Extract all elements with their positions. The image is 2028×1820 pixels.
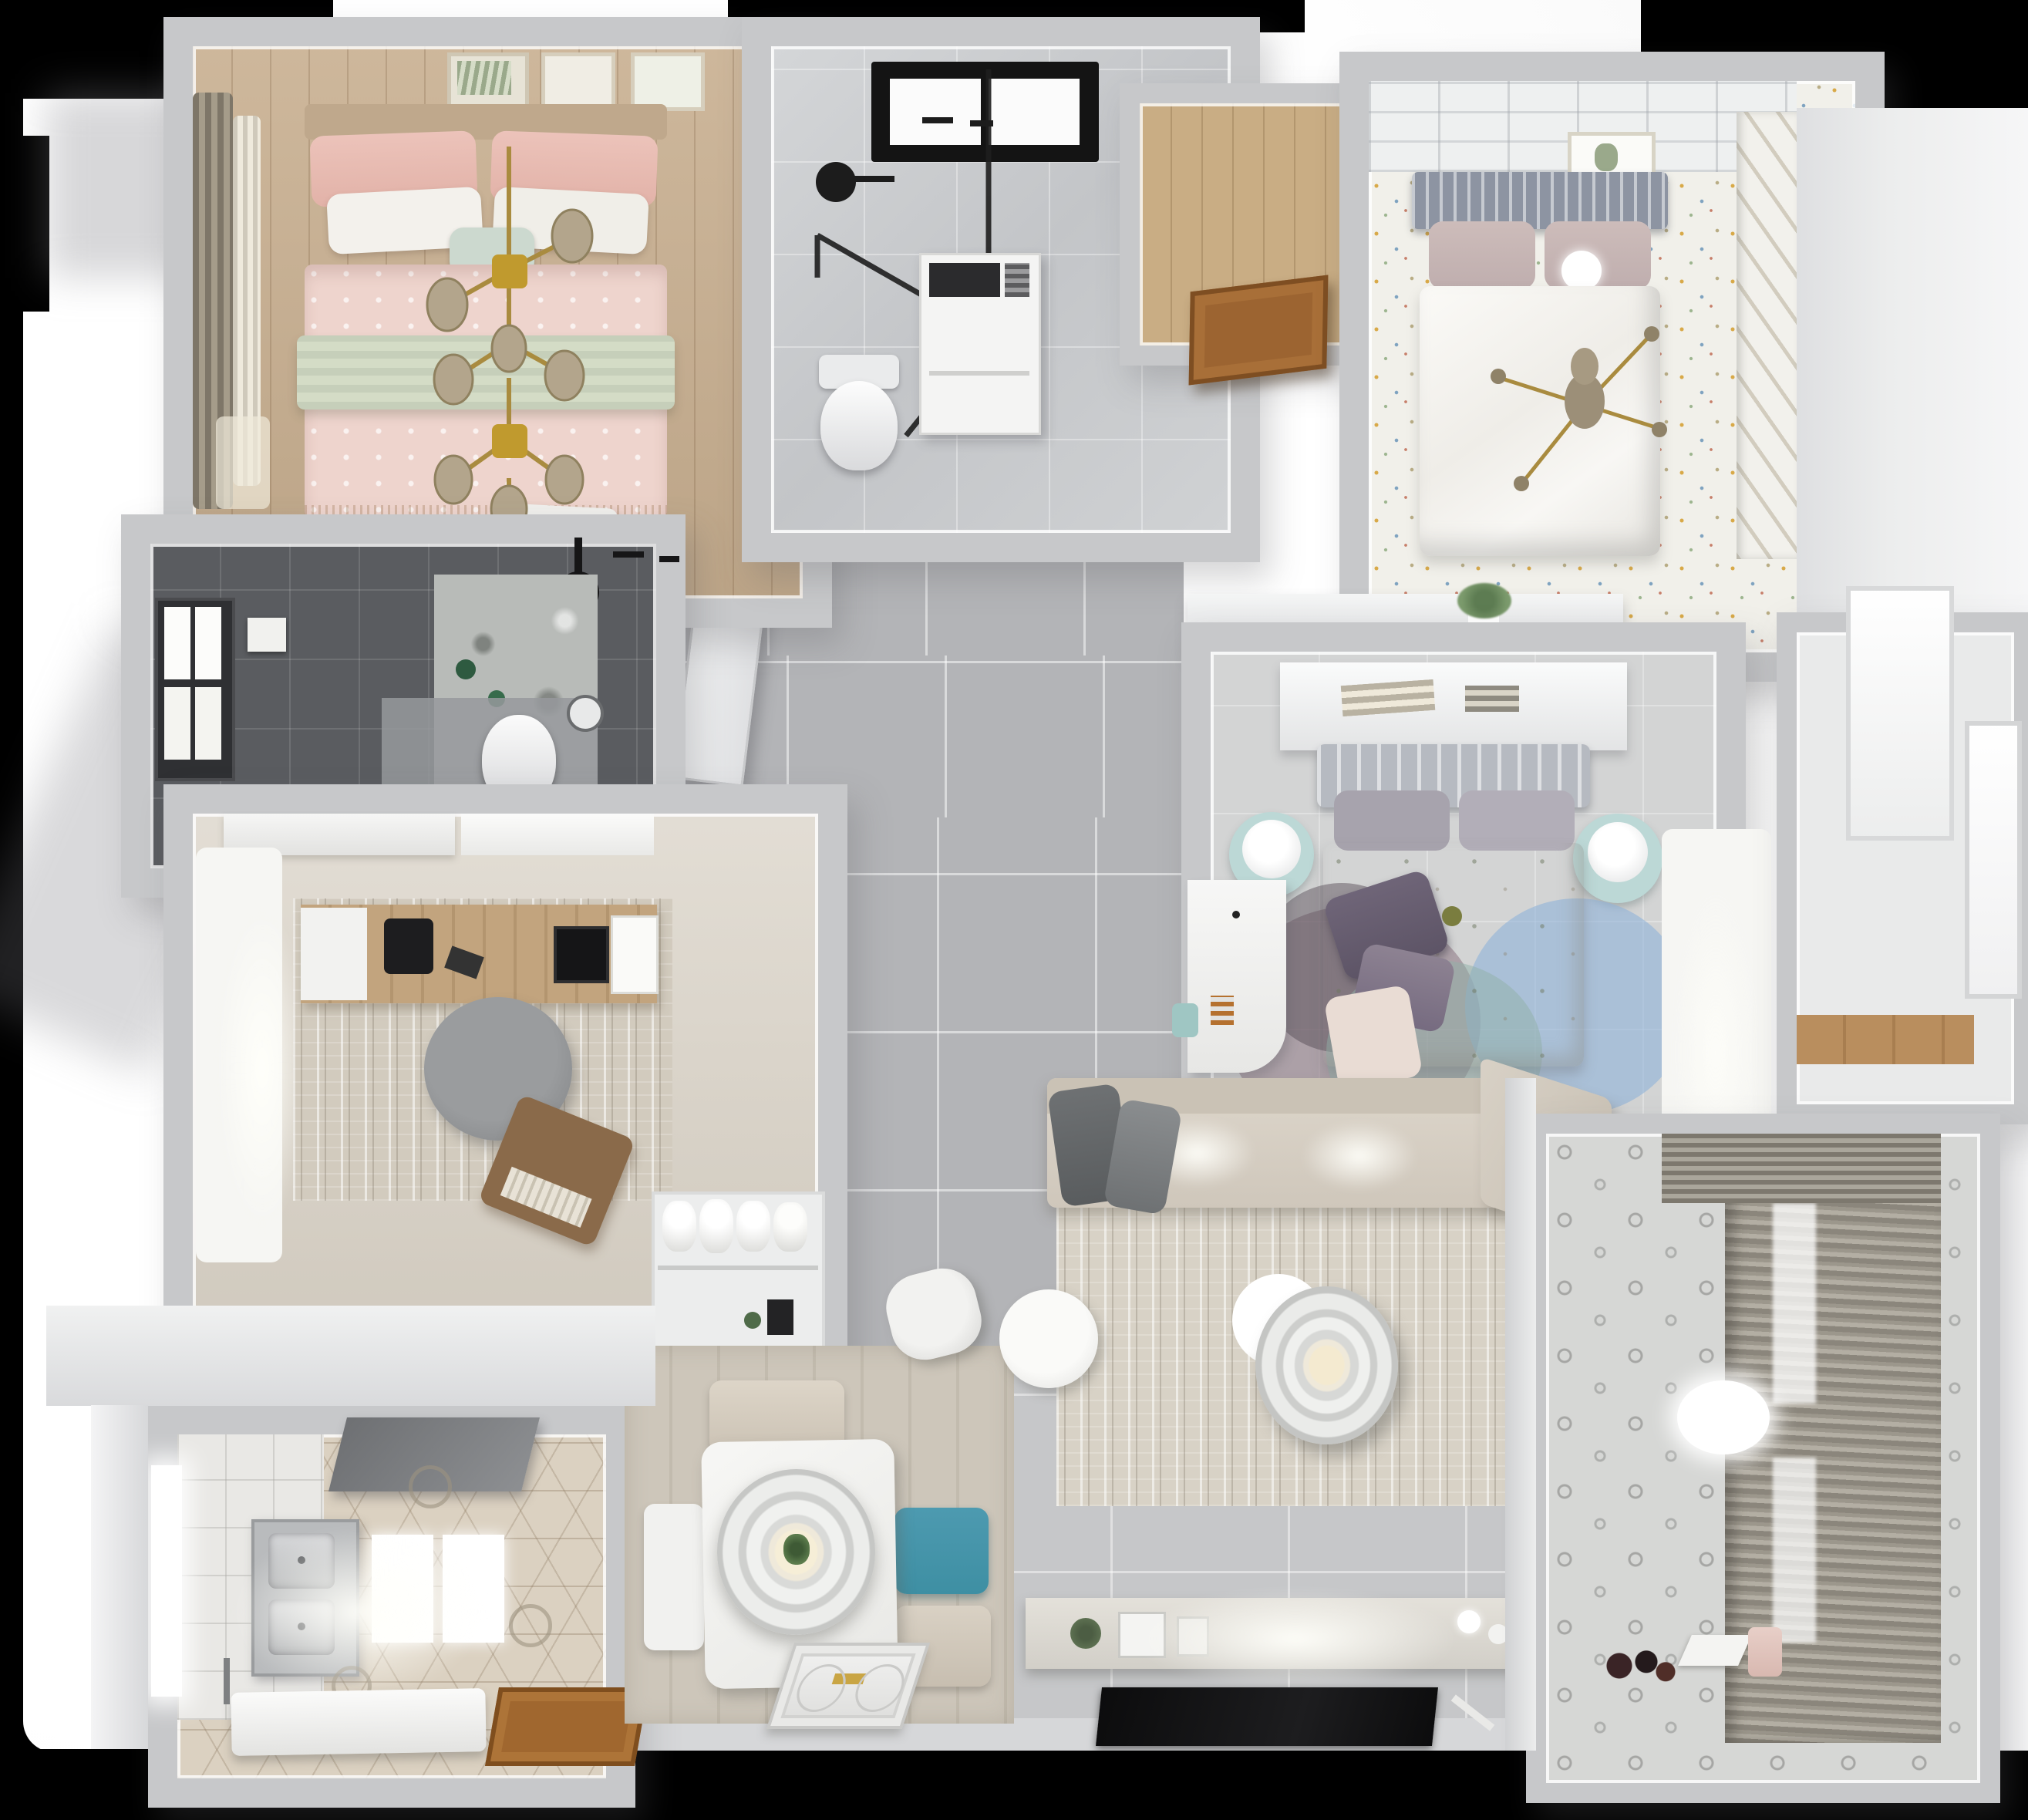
vanity-tray	[929, 263, 1000, 297]
desk-white-return	[301, 908, 367, 1000]
wall-art-frame	[447, 52, 529, 111]
wall-study-kitchen	[46, 1306, 655, 1406]
vanity-drawer-line	[929, 371, 1029, 376]
vanity-unit	[919, 253, 1041, 435]
blind-light-slit	[1773, 1203, 1816, 1404]
shower-valve	[659, 556, 679, 562]
bed-pink	[305, 104, 667, 536]
console-lamp	[1457, 1610, 1481, 1633]
wall-art-frame	[631, 52, 705, 111]
room-balcony	[1526, 1114, 2000, 1803]
window-light-pool	[216, 416, 270, 509]
towel-roll	[662, 1201, 696, 1252]
floorplan-stage	[0, 0, 2028, 1820]
window-pane	[195, 607, 221, 679]
tub-faucet	[224, 1658, 230, 1704]
nightstand-teal	[1573, 814, 1662, 903]
blind-rail-stack	[1662, 1134, 1941, 1203]
blind-light-slit	[1773, 1458, 1816, 1643]
bedroom-desk	[1187, 880, 1286, 1073]
table-lamp	[1242, 820, 1301, 878]
dining-chair-white-left	[644, 1504, 704, 1650]
kitchen-light-glow	[231, 1527, 486, 1697]
master-open-door	[1189, 275, 1329, 385]
balcony-ceiling-light	[1677, 1380, 1770, 1454]
duvet-white	[1420, 286, 1660, 556]
far-right-window	[1965, 721, 2022, 999]
towel-roll	[699, 1199, 733, 1253]
donut-coffee-table	[1255, 1286, 1398, 1444]
skylight-pane	[989, 79, 1080, 145]
round-mirror	[567, 695, 604, 732]
study-desk	[301, 905, 657, 1003]
pillow-round-white	[1561, 251, 1602, 291]
shower-valve	[613, 551, 644, 558]
shower-stem	[574, 538, 582, 576]
console-vase-green	[1070, 1618, 1101, 1649]
copper-organizer	[1211, 996, 1234, 1025]
matte-left	[0, 136, 49, 312]
tile-motif	[509, 1604, 552, 1647]
window-pane	[164, 607, 190, 679]
skylight-frame	[871, 62, 1099, 162]
vanity-bottles	[1005, 263, 1029, 297]
headboard-slatted	[1412, 172, 1668, 229]
kitchen-window	[151, 1465, 182, 1697]
art-botanical	[1595, 143, 1618, 171]
tv-flat-panel	[1096, 1687, 1438, 1746]
balcony-toys-dark	[1600, 1646, 1677, 1686]
wall-towel	[248, 618, 286, 652]
pillow-grey	[1334, 790, 1450, 851]
duvet-sprig	[1442, 906, 1462, 926]
bed-master	[1424, 172, 1656, 558]
shower-arm	[848, 176, 894, 182]
window-opening	[1846, 586, 1954, 841]
pillow-mauve	[1429, 221, 1535, 289]
white-island	[231, 1688, 486, 1756]
skylight-pane	[890, 79, 981, 145]
bed-middle	[1326, 744, 1581, 1053]
dining-chair-teal	[894, 1508, 989, 1594]
wall-art-frame	[541, 52, 615, 111]
towel-roll	[773, 1202, 807, 1252]
desk-cup	[1172, 1003, 1198, 1037]
desk-item	[1232, 911, 1240, 918]
wall-living-balcony	[1505, 1078, 1536, 1751]
art-print	[457, 61, 511, 95]
shower-head	[816, 162, 856, 202]
shower-valve	[922, 117, 953, 123]
pendant-ring-lamp	[717, 1469, 875, 1635]
sage-throw	[297, 335, 675, 410]
laptop-keys	[500, 1167, 592, 1228]
sofa-light-spot	[1302, 1121, 1417, 1191]
ottoman-round	[999, 1289, 1098, 1388]
console-light-glow	[1134, 1589, 1457, 1689]
desk-tablet	[554, 926, 609, 983]
shower-valve	[970, 120, 993, 126]
bath-window	[155, 598, 235, 781]
green-plant-accent	[456, 659, 476, 679]
books	[1341, 679, 1435, 716]
towel-roll	[736, 1201, 770, 1252]
wardrobe-shelving	[1737, 112, 1797, 559]
entry-open-door	[766, 1643, 930, 1729]
closet-header	[461, 814, 654, 855]
pillow-grey	[1459, 790, 1575, 851]
wood-shelf-band	[1797, 1015, 1974, 1064]
plant-leaves	[1457, 583, 1511, 618]
tile-motif	[409, 1465, 452, 1508]
balcony-basket	[1748, 1627, 1782, 1677]
donut-plant	[1316, 1345, 1339, 1371]
closet-decor-plant	[744, 1312, 761, 1329]
window-pane	[164, 687, 190, 760]
closet-shelf-line	[658, 1266, 818, 1270]
desk-printer	[611, 915, 659, 994]
door-panel-ring	[849, 1664, 911, 1712]
closet-decor-black	[767, 1299, 793, 1335]
headboard-console	[1280, 662, 1627, 750]
window-pane	[195, 687, 221, 760]
toilet	[810, 355, 908, 478]
toilet-bowl	[820, 381, 898, 470]
books	[1465, 686, 1519, 712]
pendant-plant	[783, 1534, 810, 1565]
pillow-blush	[1323, 984, 1423, 1090]
door-panel-ring	[790, 1664, 852, 1712]
kitchen-outer-wall	[91, 1405, 148, 1749]
desk-monitor	[384, 918, 433, 974]
table-lamp	[1588, 822, 1648, 882]
